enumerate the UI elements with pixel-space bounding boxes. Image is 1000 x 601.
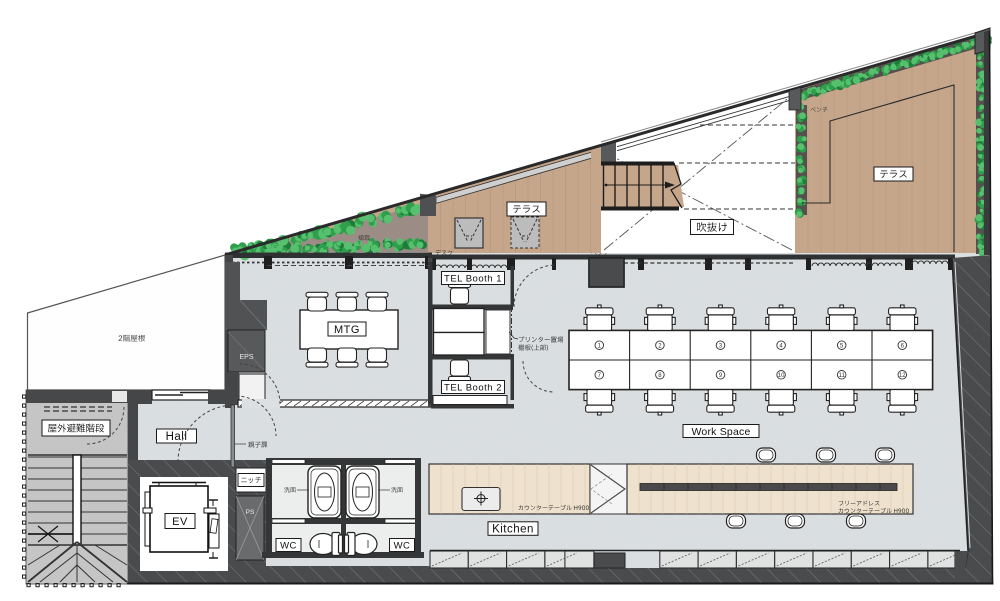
svg-text:10: 10 [778,373,785,379]
svg-text:PS: PS [246,509,255,516]
svg-text:Kitchen: Kitchen [492,524,534,536]
svg-text:MTG: MTG [334,324,360,336]
svg-text:Work Space: Work Space [692,426,751,438]
svg-text:WC: WC [280,540,297,551]
svg-text:12: 12 [899,373,906,379]
svg-text:EV: EV [172,516,188,528]
svg-text:TEL Booth 2: TEL Booth 2 [444,382,502,393]
svg-text:EPS: EPS [239,354,253,361]
svg-text:11: 11 [839,373,846,379]
svg-text:Hall: Hall [166,431,188,443]
svg-text:TEL Booth 1: TEL Booth 1 [444,273,502,284]
svg-text:WC: WC [394,540,411,551]
